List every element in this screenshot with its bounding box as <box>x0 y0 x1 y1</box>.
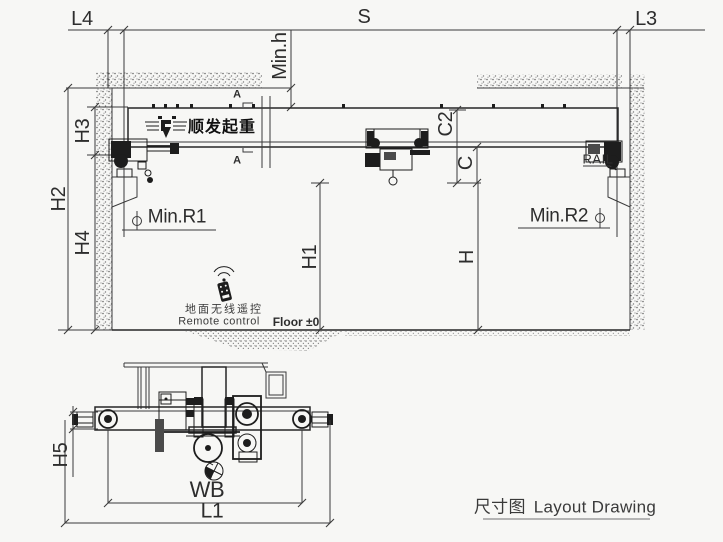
hoist-trolley <box>365 129 430 185</box>
remote-label-cn: 地面无线遥控 <box>185 305 263 316</box>
dim-label-min-r1: Min.R1 <box>148 208 206 227</box>
dim-label-h: H <box>457 250 477 264</box>
corbel-right <box>608 177 630 207</box>
dim-label-h2: H2 <box>49 187 69 212</box>
dim-label-l4: L4 <box>71 9 93 29</box>
dimension-mid <box>311 106 482 334</box>
dim-label-h1: H1 <box>300 245 320 270</box>
dim-label-l3: L3 <box>635 9 657 29</box>
end-truck-left <box>109 139 179 183</box>
dim-label-s: S <box>357 7 370 27</box>
drawing-title: 尺寸图Layout Drawing <box>474 493 656 518</box>
drawing-canvas <box>0 0 723 542</box>
floor-line <box>112 330 630 351</box>
dim-label-l1: L1 <box>201 501 224 522</box>
layout-drawing: L4 S L3 Min.h H3 H2 H4 C2 C H1 H Min.R1 … <box>0 0 723 542</box>
rail-label: RAIL <box>583 153 614 166</box>
ceiling-right <box>477 74 644 88</box>
dim-label-c2: C2 <box>436 112 456 137</box>
dim-label-wb: WB <box>190 479 225 501</box>
dim-label-h4: H4 <box>73 231 93 256</box>
dim-label-min-r2: Min.R2 <box>530 207 588 226</box>
drawing-title-en: Layout Drawing <box>534 498 656 517</box>
remote-label-en: Remote control <box>178 317 260 328</box>
logo-text: 顺发起重 <box>188 120 256 136</box>
remote-control-icon <box>214 267 234 303</box>
floor-label: Floor ±0 <box>273 316 320 328</box>
section-label-a-top: A <box>233 90 241 101</box>
shunfa-logo-icon <box>145 116 187 138</box>
wall-left <box>96 72 112 330</box>
section-label-a-bottom: A <box>233 156 241 167</box>
dim-label-min-h: Min.h <box>270 32 290 79</box>
drawing-title-cn: 尺寸图 <box>474 498 526 517</box>
hoist-cross-section <box>155 392 261 480</box>
wall-right <box>630 74 645 330</box>
dim-label-h3: H3 <box>73 119 93 144</box>
dim-label-h5: H5 <box>51 443 71 468</box>
dim-label-c: C <box>456 156 476 170</box>
